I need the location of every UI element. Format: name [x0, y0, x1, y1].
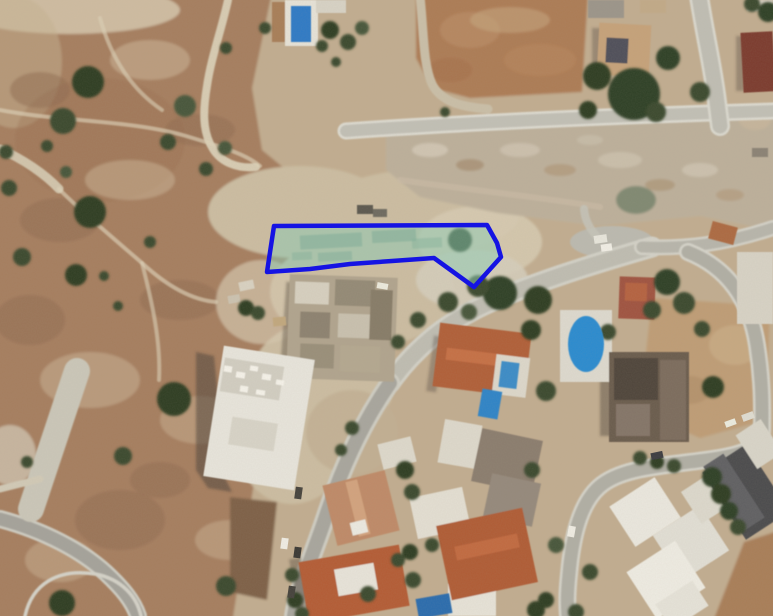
noise-layer: [0, 0, 773, 616]
noise-overlay: [0, 0, 773, 616]
satellite-map-canvas[interactable]: [0, 0, 773, 616]
satellite-map-viewport: [0, 0, 773, 616]
